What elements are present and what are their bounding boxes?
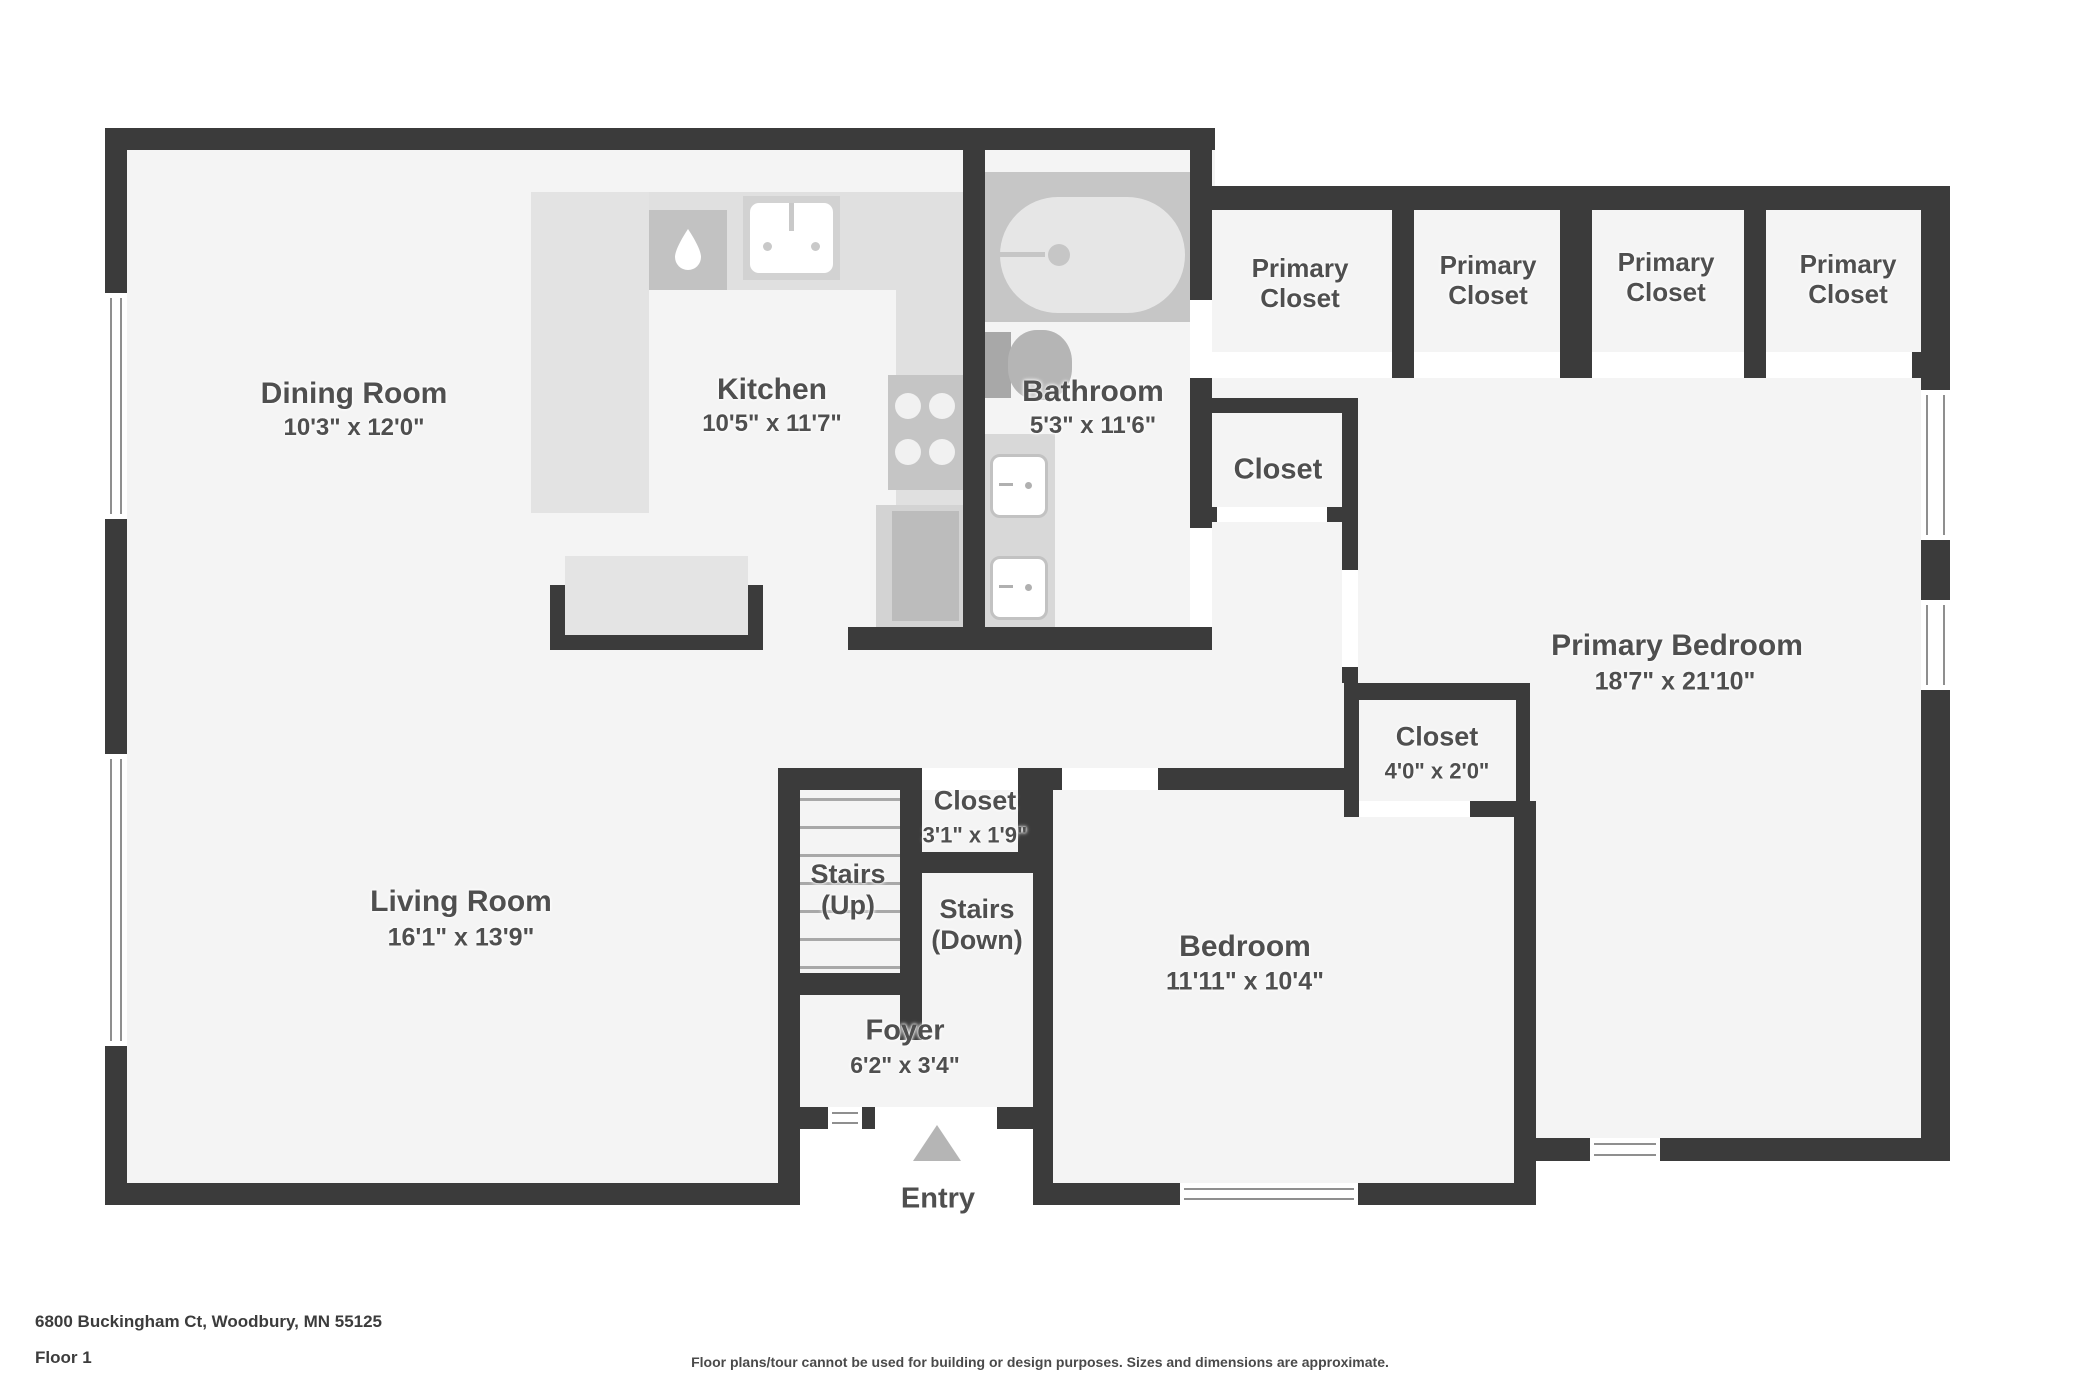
label-kitchen: Kitchen xyxy=(717,373,827,408)
window xyxy=(828,1107,862,1129)
burner xyxy=(929,439,955,465)
floor-label: Floor 1 xyxy=(35,1348,92,1368)
wall-kitchen-bath-divider xyxy=(963,128,985,650)
label-primary-bedroom-dims: 18'7" x 21'10" xyxy=(1595,668,1756,697)
wall-bedroom-right xyxy=(1514,801,1536,1205)
window xyxy=(105,754,127,1046)
window xyxy=(1921,600,1950,690)
wall-closetrow-top xyxy=(1193,186,1950,210)
oven xyxy=(876,505,963,627)
label-kitchen-dims: 10'5" x 11'7" xyxy=(702,410,842,438)
wall-bathroom-right xyxy=(1190,128,1212,300)
wall-hall-primary xyxy=(1342,667,1358,683)
stair-tread xyxy=(800,798,900,801)
label-closet-primary-dims: 4'0" x 2'0" xyxy=(1385,758,1490,783)
wall-bathroom-right xyxy=(1190,378,1212,528)
label-stairs-down: Stairs (Down) xyxy=(931,894,1022,956)
wall-bedroom-top xyxy=(1158,768,1358,790)
stair-tread xyxy=(800,826,900,829)
counter-strip xyxy=(531,192,649,513)
label-closet-entry: Closet xyxy=(934,785,1017,816)
door-opening-bathroom xyxy=(1190,300,1212,378)
wall-closetrow-divider xyxy=(1744,210,1766,378)
wall-closet-primary-top xyxy=(1344,683,1530,700)
wall-stairs-bottom xyxy=(778,973,900,995)
disclaimer-text: Floor plans/tour cannot be used for buil… xyxy=(691,1354,1389,1370)
label-living-room-dims: 16'1" x 13'9" xyxy=(388,924,535,953)
label-primary-bedroom: Primary Bedroom xyxy=(1551,629,1803,664)
address-text: 6800 Buckingham Ct, Woodbury, MN 55125 xyxy=(35,1312,382,1332)
vanity-sink-icon xyxy=(990,454,1048,518)
label-primary-closet-1: Primary Closet xyxy=(1215,254,1385,314)
label-primary-closet-3: Primary Closet xyxy=(1591,248,1741,308)
floor-plan: Dining Room 10'3" x 12'0" Kitchen 10'5" … xyxy=(0,0,2080,1386)
door-opening-primary-closet-1 xyxy=(1212,352,1392,378)
wall-closet-hall-top xyxy=(1202,398,1355,413)
label-primary-closet-4: Primary Closet xyxy=(1773,250,1923,310)
vanity-sink-icon xyxy=(990,556,1048,620)
stairs-up-line2: (Up) xyxy=(810,890,885,921)
kitchen-island-counter xyxy=(565,556,748,636)
stair-tread xyxy=(800,854,900,857)
wall-kitchen-bottom xyxy=(848,627,1212,650)
wall-stairs-divider xyxy=(900,768,922,1040)
stove-icon xyxy=(888,375,963,490)
wall-hall-primary xyxy=(1342,398,1358,570)
wall-living-bottom xyxy=(105,1183,800,1205)
stair-tread xyxy=(800,966,900,969)
label-closet-primary: Closet xyxy=(1396,721,1479,752)
label-stairs-up: Stairs (Up) xyxy=(810,859,885,921)
label-foyer: Foyer xyxy=(866,1014,945,1047)
window xyxy=(1180,1183,1358,1205)
door-opening-closet-hall xyxy=(1217,507,1327,522)
water-heater xyxy=(649,210,727,290)
wall-top-main xyxy=(105,128,1215,150)
wall-foyer-bottom xyxy=(862,1107,875,1129)
entry-arrow-icon xyxy=(913,1125,961,1161)
label-dining-room-dims: 10'3" x 12'0" xyxy=(284,414,425,442)
label-foyer-dims: 6'2" x 3'4" xyxy=(850,1052,960,1078)
door-opening-primary-closet-3 xyxy=(1592,352,1744,378)
label-bedroom-dims: 11'11" x 10'4" xyxy=(1166,968,1324,997)
wall-foyer-bottom xyxy=(778,1107,828,1129)
wall-closet-hall-bottom xyxy=(1327,507,1355,522)
wall-closet-primary-right xyxy=(1516,683,1530,817)
wall-closet-primary-bottom xyxy=(1344,801,1359,817)
door-opening-primary-closet-4 xyxy=(1766,352,1912,378)
label-primary-closet-2: Primary Closet xyxy=(1413,251,1563,311)
burner xyxy=(895,393,921,419)
door-opening-primary-bedroom xyxy=(1342,570,1358,667)
window xyxy=(1921,390,1950,540)
window xyxy=(1590,1138,1660,1161)
wall-island xyxy=(550,635,763,650)
stair-tread xyxy=(800,938,900,941)
door-opening-bedroom xyxy=(1062,768,1158,790)
stairs-down-line2: (Down) xyxy=(931,925,1022,956)
label-bathroom: Bathroom xyxy=(1022,375,1164,410)
door-opening-closet-primary xyxy=(1359,801,1470,817)
wall-closetrow-divider xyxy=(1560,210,1592,378)
label-closet-entry-dims: 3'1" x 1'9" xyxy=(923,822,1028,847)
bathtub-icon xyxy=(1000,197,1185,313)
stairs-down-line1: Stairs xyxy=(931,894,1022,925)
label-closet-hall: Closet xyxy=(1234,453,1323,486)
label-living-room: Living Room xyxy=(370,885,552,920)
kitchen-sink-icon xyxy=(743,196,840,280)
wall-closet-primary-bottom xyxy=(1470,801,1530,817)
burner xyxy=(929,393,955,419)
label-bedroom: Bedroom xyxy=(1179,930,1311,965)
label-dining-room: Dining Room xyxy=(261,377,448,412)
stairs-up-line1: Stairs xyxy=(810,859,885,890)
door-opening-primary-closet-2 xyxy=(1414,352,1560,378)
wall-closetrow-divider xyxy=(1392,210,1414,378)
label-entry: Entry xyxy=(901,1182,975,1215)
wall-island xyxy=(748,585,763,650)
water-drop-icon xyxy=(671,228,705,272)
label-bathroom-dims: 5'3" x 11'6" xyxy=(1030,412,1156,440)
door-opening-bathroom xyxy=(1190,528,1212,627)
burner xyxy=(895,439,921,465)
wall-closet-primary-left xyxy=(1344,683,1359,817)
window xyxy=(105,293,127,519)
wall-closet-entry-bottom xyxy=(900,852,1040,873)
